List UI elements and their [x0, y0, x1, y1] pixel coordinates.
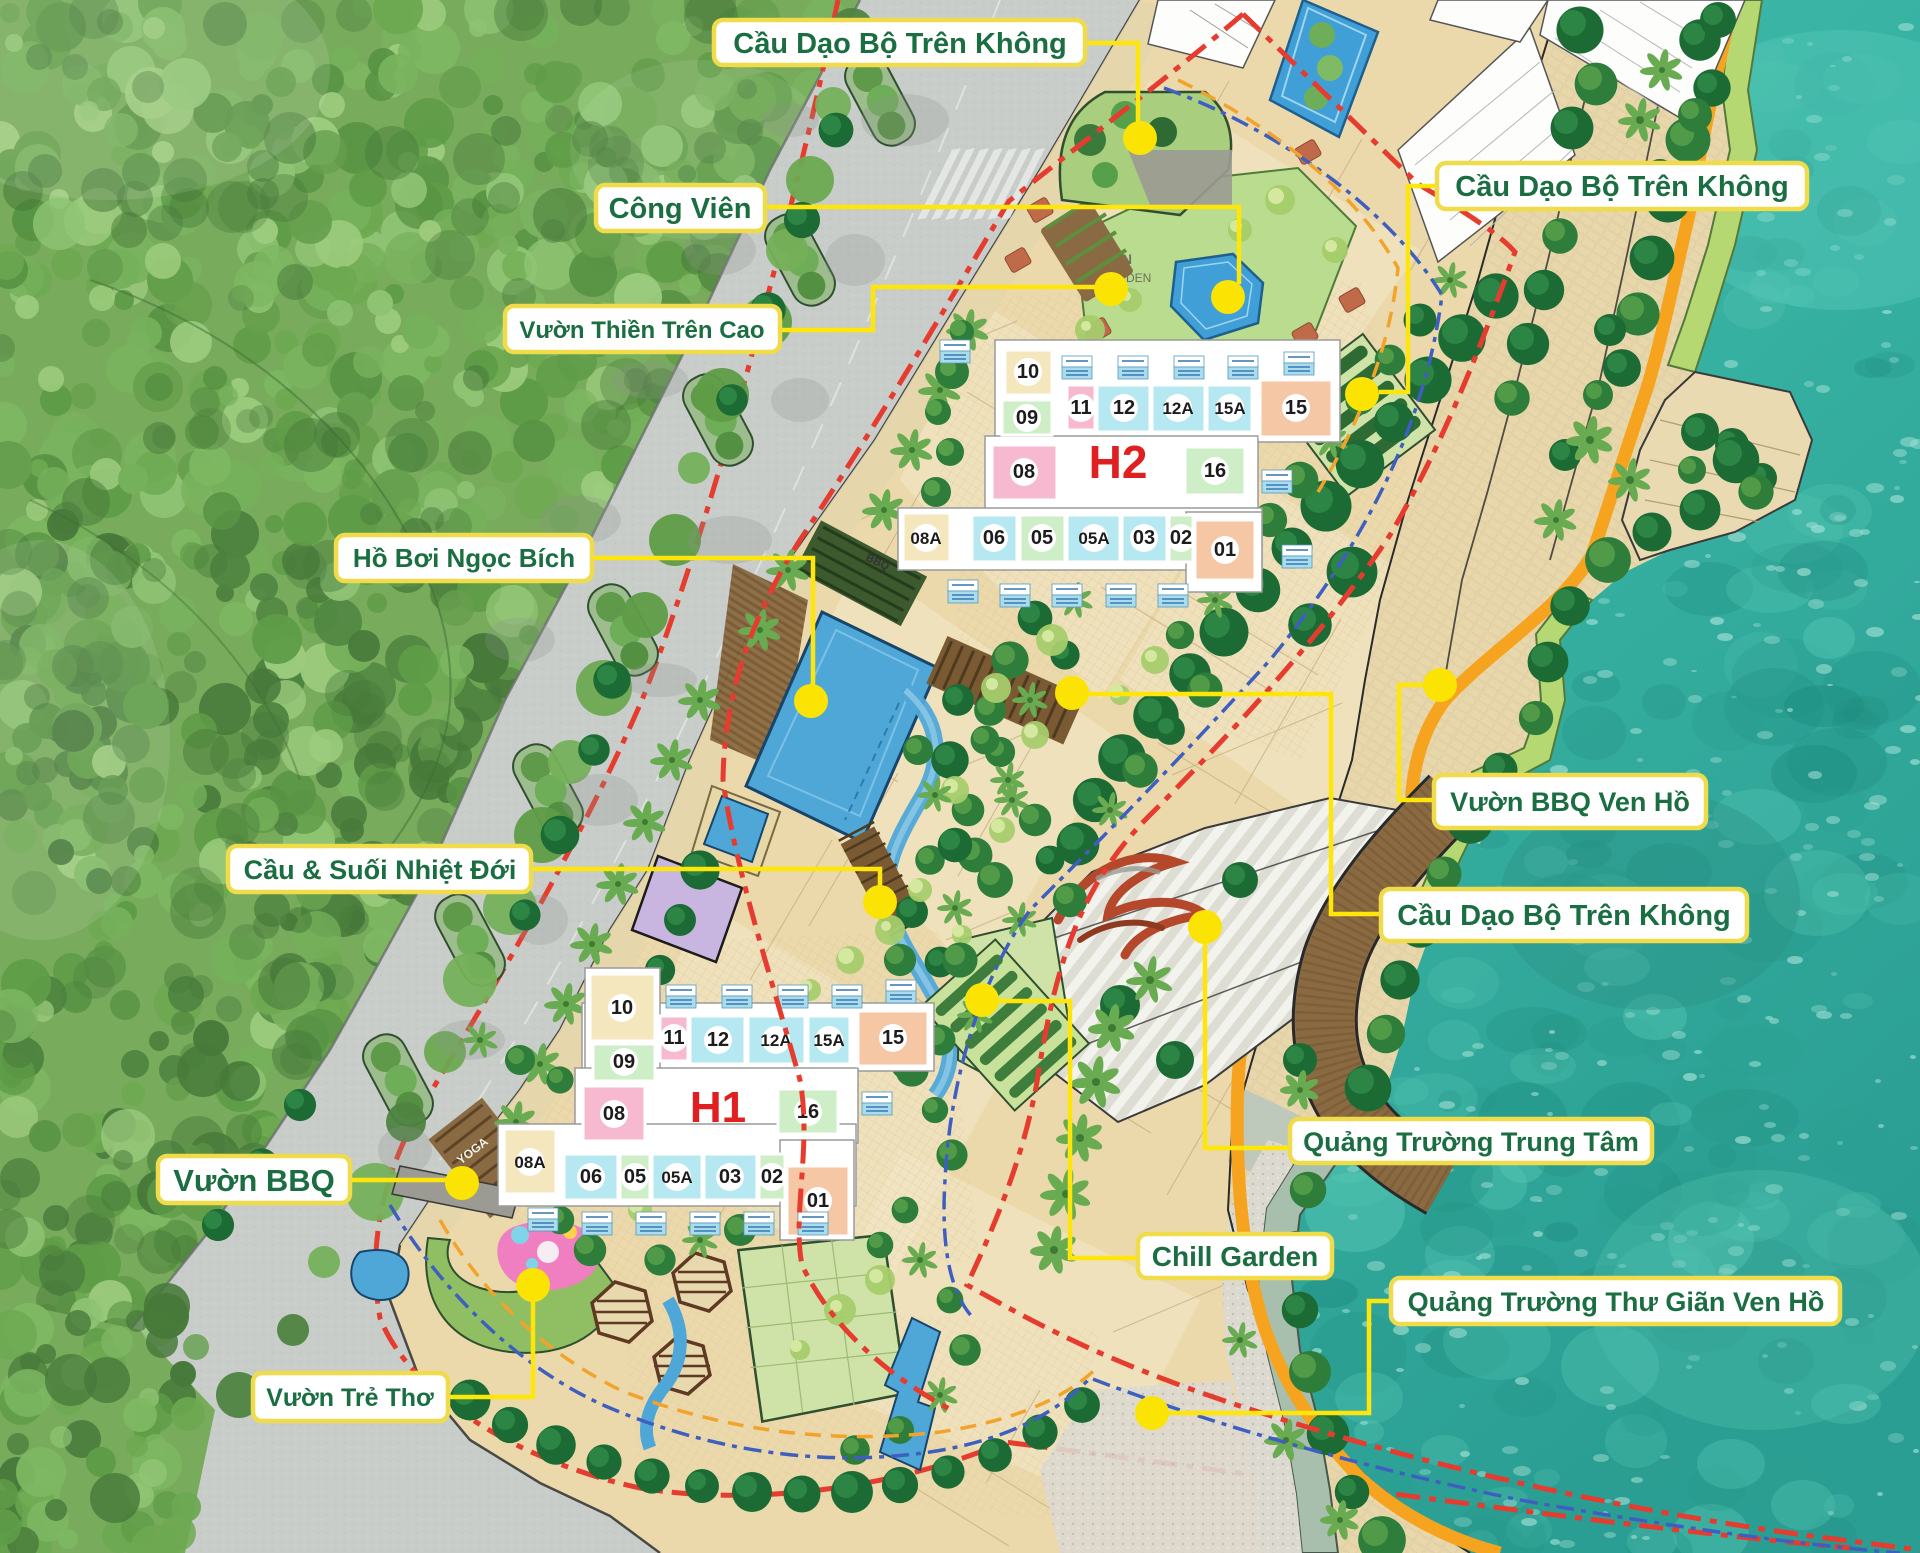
svg-text:08: 08: [603, 1103, 625, 1125]
svg-text:Quảng Trường Trung Tâm: Quảng Trường Trung Tâm: [1303, 1127, 1639, 1157]
svg-text:06: 06: [580, 1166, 602, 1188]
svg-text:03: 03: [1133, 527, 1155, 549]
svg-text:05: 05: [624, 1166, 646, 1188]
svg-text:Vườn Thiền Trên Cao: Vườn Thiền Trên Cao: [519, 317, 764, 344]
svg-text:Vườn BBQ Ven Hồ: Vườn BBQ Ven Hồ: [1450, 787, 1690, 817]
svg-text:15: 15: [882, 1027, 904, 1049]
svg-text:Cầu Dạo Bộ Trên Không: Cầu Dạo Bộ Trên Không: [1455, 171, 1789, 203]
svg-text:15A: 15A: [813, 1031, 844, 1050]
svg-text:Cầu Dạo Bộ Trên Không: Cầu Dạo Bộ Trên Không: [1397, 900, 1731, 932]
svg-text:10: 10: [611, 997, 633, 1019]
svg-text:09: 09: [1016, 407, 1038, 429]
svg-text:Cầu & Suối Nhiệt Đới: Cầu & Suối Nhiệt Đới: [244, 855, 517, 885]
svg-text:02: 02: [761, 1166, 783, 1188]
svg-text:11: 11: [1070, 397, 1091, 419]
svg-text:01: 01: [807, 1190, 829, 1212]
svg-text:Công Viên: Công Viên: [609, 193, 752, 225]
svg-text:03: 03: [719, 1166, 741, 1188]
svg-text:Hồ Bơi Ngọc Bích: Hồ Bơi Ngọc Bích: [353, 543, 575, 573]
svg-text:12: 12: [707, 1029, 729, 1051]
svg-text:08A: 08A: [514, 1153, 545, 1172]
svg-text:11: 11: [663, 1027, 684, 1049]
svg-text:12A: 12A: [1162, 399, 1193, 418]
svg-text:15A: 15A: [1214, 399, 1245, 418]
svg-text:06: 06: [983, 527, 1005, 549]
svg-text:Cầu Dạo Bộ Trên Không: Cầu Dạo Bộ Trên Không: [733, 28, 1067, 60]
svg-text:Quảng Trường Thư Giãn Ven Hồ: Quảng Trường Thư Giãn Ven Hồ: [1408, 1287, 1825, 1317]
svg-text:05A: 05A: [1078, 529, 1109, 548]
svg-text:05: 05: [1031, 527, 1053, 549]
svg-text:16: 16: [1204, 460, 1226, 482]
svg-text:08A: 08A: [910, 529, 941, 548]
svg-text:10: 10: [1017, 361, 1039, 383]
svg-text:01: 01: [1214, 539, 1236, 561]
svg-text:Vườn BBQ: Vườn BBQ: [173, 1163, 335, 1198]
svg-text:H2: H2: [1089, 436, 1148, 488]
svg-text:15: 15: [1285, 397, 1307, 419]
svg-text:Chill Garden: Chill Garden: [1152, 1241, 1318, 1272]
svg-text:16: 16: [797, 1101, 819, 1123]
svg-text:Vườn Trẻ Thơ: Vườn Trẻ Thơ: [266, 1384, 434, 1412]
svg-text:05A: 05A: [661, 1168, 692, 1187]
svg-text:02: 02: [1170, 527, 1192, 549]
svg-text:09: 09: [613, 1051, 635, 1073]
svg-text:08: 08: [1013, 461, 1035, 483]
svg-text:12: 12: [1113, 397, 1135, 419]
svg-text:H1: H1: [690, 1083, 746, 1132]
